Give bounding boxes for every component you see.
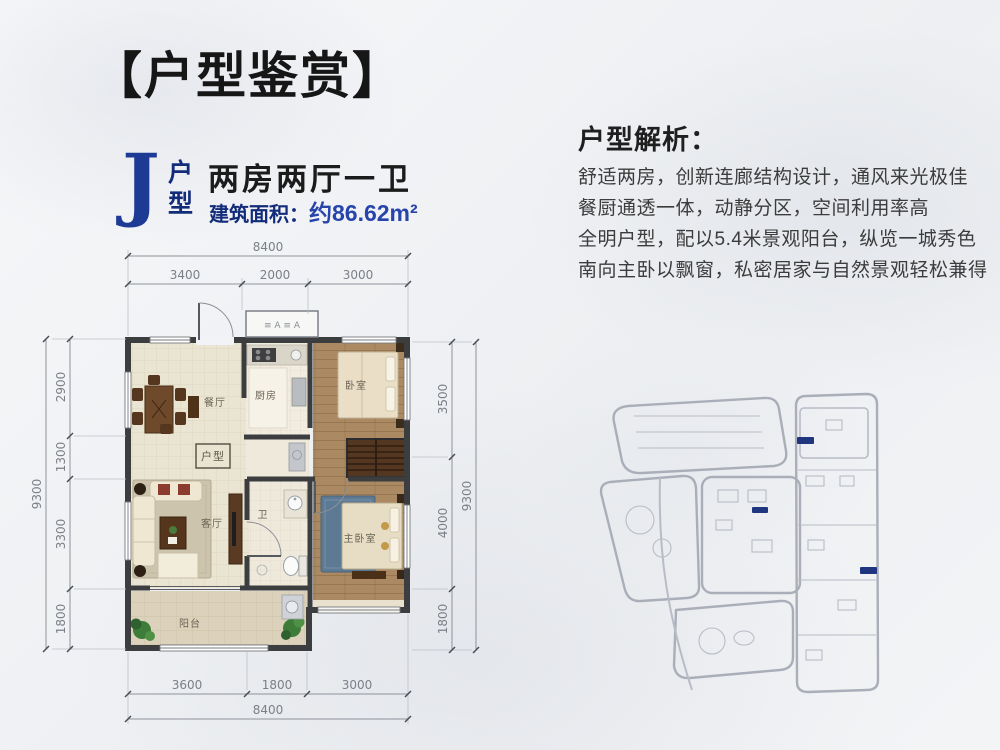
analysis-line-1: 舒适两房，创新连廊结构设计，通风来光极佳 (578, 162, 988, 193)
dim-bottom-total: 8400 (253, 703, 284, 717)
unit-type-label-bottom: 型 (168, 189, 193, 220)
dim-right-2: 4000 (436, 508, 450, 539)
entry-door (196, 303, 234, 345)
ac-platform: ≡ A ≡ A (246, 311, 318, 337)
analysis-line-4: 南向主卧以飘窗，私密居家与自然景观轻松兼得 (578, 255, 988, 286)
site-map-details (626, 408, 876, 690)
label-living: 客厅 (201, 517, 223, 530)
label-balcony: 阳台 (179, 617, 201, 630)
floor-tag-text: 户型 (201, 449, 225, 463)
site-map (583, 386, 938, 698)
label-dining: 餐厅 (204, 396, 226, 409)
area-value: 约86.62m² (309, 200, 418, 226)
label-bedroom: 卧室 (345, 379, 367, 392)
label-kitchen: 厨房 (255, 389, 277, 402)
site-map-parcels (601, 394, 878, 692)
unit-type-label: 户 型 (168, 158, 193, 220)
floor-tag: 户型 (196, 444, 230, 468)
unit-type-letter: J (122, 143, 160, 223)
label-master: 主卧室 (344, 532, 377, 545)
unit-type-label-top: 户 (168, 158, 193, 189)
unit-layout-text: 两房两厅一卫 (208, 154, 412, 199)
floor-plan: ≡ A ≡ A 户型 餐厅 厨房 卧室 客厅 卫 主卧室 阳台 8400 340… (25, 233, 490, 733)
label-bath: 卫 (258, 510, 269, 521)
dim-bottom-1: 3600 (172, 678, 203, 692)
dim-right-total: 9300 (460, 481, 474, 512)
dim-left-total: 9300 (30, 479, 44, 510)
analysis-line-2: 餐厨通透一体，动静分区，空间利用率高 (578, 193, 988, 224)
dim-left-4: 1800 (54, 604, 68, 635)
page-title: 【户型鉴赏】 (92, 36, 404, 108)
dim-left-2: 1300 (54, 442, 68, 473)
dim-left-3: 3300 (54, 519, 68, 550)
dim-top-3: 3000 (343, 268, 374, 282)
dim-top-2: 2000 (260, 268, 291, 282)
wardrobe-block (347, 439, 406, 477)
dim-bottom-3: 3000 (342, 678, 373, 692)
dim-bottom-2: 1800 (262, 678, 293, 692)
analysis-line-3: 全明户型，配以5.4米景观阳台，纵览一城秀色 (578, 224, 988, 255)
dim-right-1: 3500 (436, 384, 450, 415)
dim-left-1: 2900 (54, 372, 68, 403)
ac-platform-marks: ≡ A ≡ A (264, 321, 301, 331)
unit-area-line: 建筑面积：约86.62m² (209, 194, 418, 228)
analysis-body: 舒适两房，创新连廊结构设计，通风来光极佳 餐厨通透一体，动静分区，空间利用率高 … (578, 162, 988, 286)
dim-top-total: 8400 (253, 240, 284, 254)
dim-top-1: 3400 (170, 268, 201, 282)
area-label: 建筑面积： (209, 204, 309, 226)
dim-right-3: 1800 (436, 604, 450, 635)
brochure-page: 【户型鉴赏】 J 户 型 两房两厅一卫 建筑面积：约86.62m² 户型解析： … (0, 0, 1000, 750)
analysis-heading: 户型解析： (578, 118, 718, 157)
